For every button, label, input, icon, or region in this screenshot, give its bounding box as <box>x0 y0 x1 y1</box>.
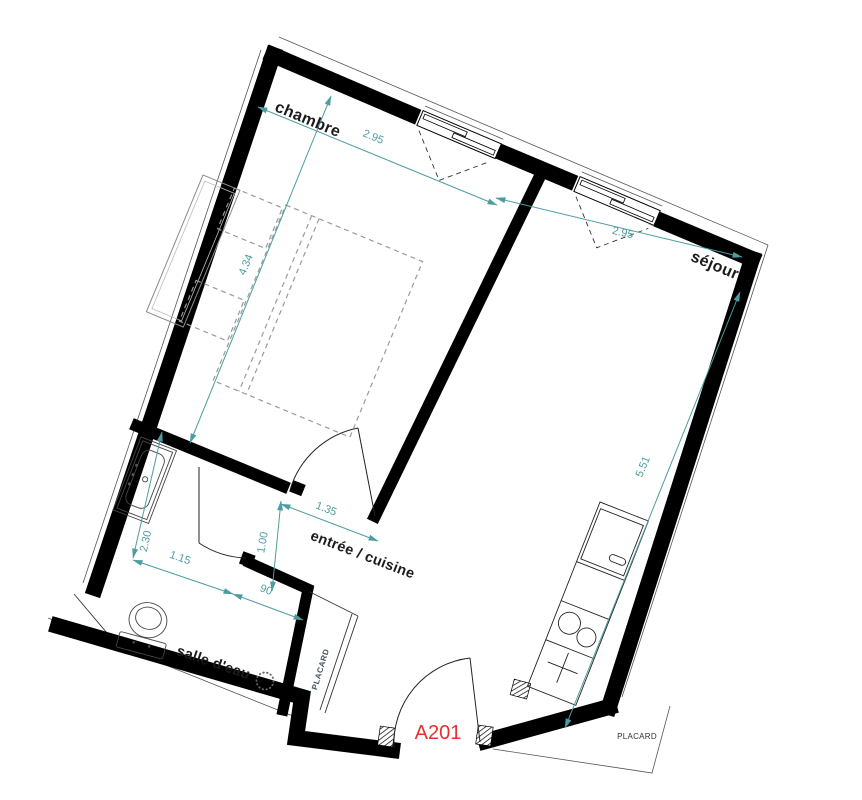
label-placard: PLACARD <box>310 648 331 691</box>
door-salle-eau <box>199 467 246 558</box>
label-entree-cuisine: entrée / cuisine <box>308 528 417 582</box>
dimension-labels: 2.95 4.34 2.95 5.51 1.35 1.00 2.30 1.15 … <box>138 128 653 598</box>
dim-douche-largeur: 90 <box>258 582 274 597</box>
label-placard-exterieur: PLACARD <box>617 732 657 741</box>
floor-plan-page: 2.95 4.34 2.95 5.51 1.35 1.00 2.30 1.15 … <box>0 0 862 800</box>
dim-sejour-longueur: 5.51 <box>634 455 653 479</box>
dim-chambre-largeur: 2.95 <box>361 128 385 147</box>
floor-plan: 2.95 4.34 2.95 5.51 1.35 1.00 2.30 1.15 … <box>0 0 862 800</box>
placard-closet <box>310 592 358 713</box>
dim-salle-eau-longueur: 2.30 <box>138 530 155 554</box>
dim-entree-largeur: 1.35 <box>314 500 338 519</box>
kitchen-block <box>527 502 648 705</box>
door-chambre <box>290 428 375 516</box>
room-labels: chambre séjour entrée / cuisine salle d'… <box>174 99 741 741</box>
dim-sejour-largeur: 2.95 <box>611 225 635 242</box>
label-chambre: chambre <box>272 99 343 141</box>
unit-label: A201 <box>415 722 462 744</box>
dim-chambre-longueur: 4.34 <box>237 253 256 277</box>
outer-walls <box>58 55 752 750</box>
dim-entree-profondeur: 1.00 <box>255 531 271 554</box>
dim-salle-eau-largeur: 1.15 <box>168 549 192 567</box>
bed-furniture <box>132 171 423 437</box>
